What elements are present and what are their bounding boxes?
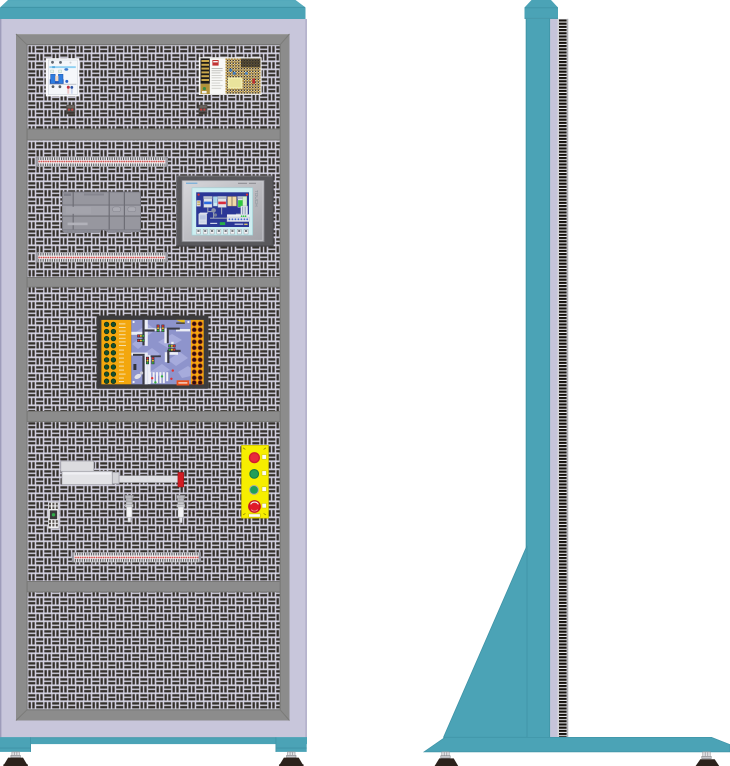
svg-text:TOUCH: TOUCH xyxy=(254,190,259,207)
